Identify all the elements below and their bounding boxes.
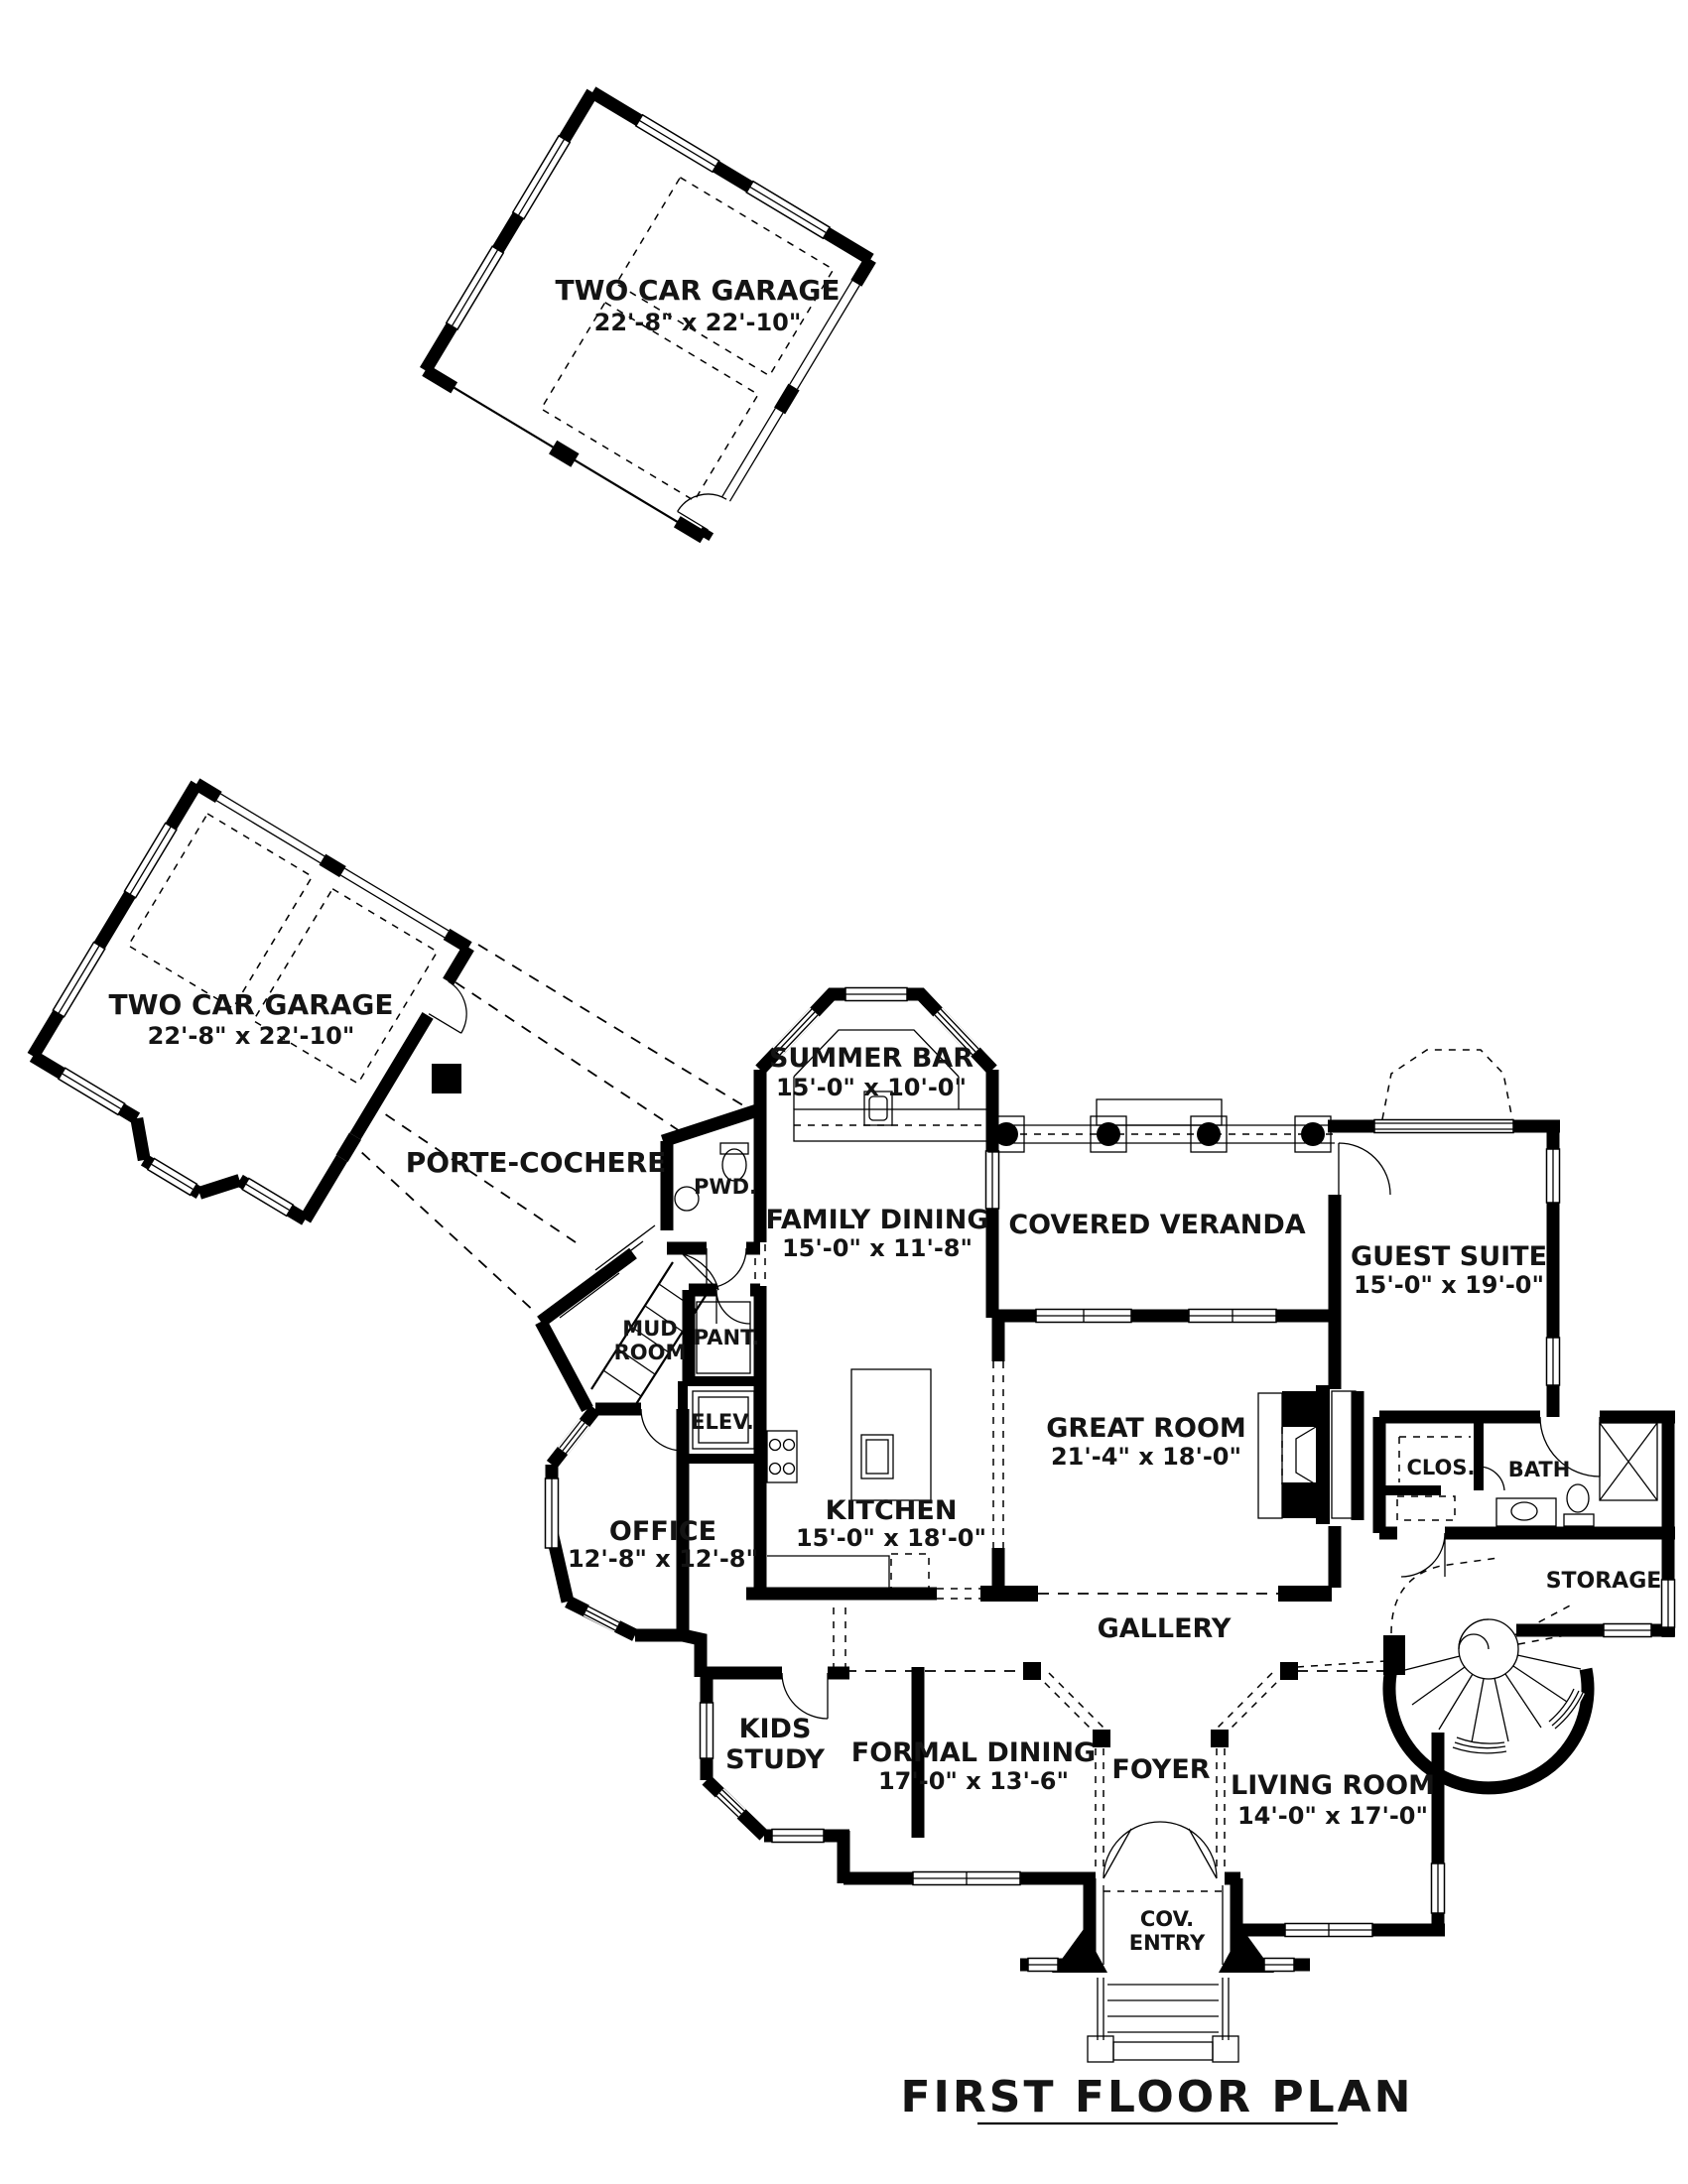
label-covered-entry-2: ENTRY (1129, 1931, 1206, 1955)
porte-cochere-pier (432, 1064, 461, 1093)
label-garage-top-name: TWO CAR GARAGE (555, 274, 840, 307)
foyer-column (1211, 1730, 1229, 1747)
label-mud-room-2: ROOM (614, 1341, 687, 1364)
label-pantry: PANT. (694, 1326, 759, 1349)
label-covered-veranda: COVERED VERANDA (1008, 1210, 1305, 1240)
label-formal-dining-name: FORMAL DINING (851, 1737, 1096, 1768)
gallery-column (1023, 1662, 1041, 1680)
floor-plan-drawing: TWO CAR GARAGE 22'-8" x 22'-10" TWO CAR … (0, 0, 1688, 2184)
label-living-room-dims: 14'-0" x 17'-0" (1237, 1802, 1428, 1830)
label-summer-bar-dims: 15'-0" x 10'-0" (776, 1074, 967, 1101)
label-office-name: OFFICE (609, 1516, 716, 1547)
label-powder: PWD. (694, 1175, 757, 1199)
label-storage: STORAGE (1546, 1569, 1662, 1594)
label-living-room-name: LIVING ROOM (1231, 1770, 1435, 1801)
label-garage-left-dims: 22'-8" x 22'-10" (148, 1022, 355, 1050)
gallery-column (1280, 1662, 1298, 1680)
label-formal-dining-dims: 17'-0" x 13'-6" (878, 1767, 1069, 1795)
label-kids-study-1: KIDS (739, 1714, 812, 1744)
range (767, 1431, 797, 1482)
label-elevator: ELEV. (691, 1410, 754, 1434)
label-porte-cochere: PORTE-COCHERE (406, 1146, 667, 1179)
guest-suite-bay-roof (1382, 1050, 1512, 1119)
first-floor-plan-sheet: TWO CAR GARAGE 22'-8" x 22'-10" TWO CAR … (0, 0, 1688, 2184)
label-kitchen-name: KITCHEN (826, 1495, 958, 1526)
bath-toilet (1567, 1484, 1589, 1512)
label-family-dining-name: FAMILY DINING (766, 1205, 989, 1235)
label-covered-entry-1: COV. (1140, 1907, 1194, 1931)
sheet-title: FIRST FLOOR PLAN (900, 2072, 1413, 2122)
entry-steps (1088, 1978, 1238, 2062)
label-gallery: GALLERY (1098, 1613, 1232, 1644)
label-bath: BATH (1508, 1458, 1571, 1481)
covered-entry (1020, 1878, 1310, 2062)
shower (1600, 1423, 1657, 1500)
fireplace (1258, 1385, 1358, 1524)
label-kids-study-2: STUDY (725, 1744, 825, 1775)
label-garage-left-name: TWO CAR GARAGE (108, 988, 393, 1021)
label-summer-bar-name: SUMMER BAR (769, 1043, 974, 1074)
closet-bath (1379, 1417, 1675, 1577)
label-family-dining-dims: 15'-0" x 11'-8" (782, 1234, 973, 1262)
label-foyer: FOYER (1111, 1754, 1210, 1785)
label-guest-suite-dims: 15'-0" x 19'-0" (1354, 1271, 1544, 1299)
label-guest-suite-name: GUEST SUITE (1351, 1241, 1547, 1272)
label-great-room-name: GREAT ROOM (1046, 1413, 1246, 1444)
label-great-room-dims: 21'-4" x 18'-0" (1051, 1443, 1241, 1471)
label-mud-room-1: MUD (622, 1317, 677, 1341)
label-kitchen-dims: 15'-0" x 18'-0" (796, 1524, 986, 1552)
label-garage-top-dims: 22'-8" x 22'-10" (594, 309, 802, 336)
label-office-dims: 12'-8" x 12'-8" (568, 1545, 758, 1573)
guest-suite (1328, 1050, 1560, 1417)
label-closet: CLOS. (1407, 1456, 1476, 1479)
